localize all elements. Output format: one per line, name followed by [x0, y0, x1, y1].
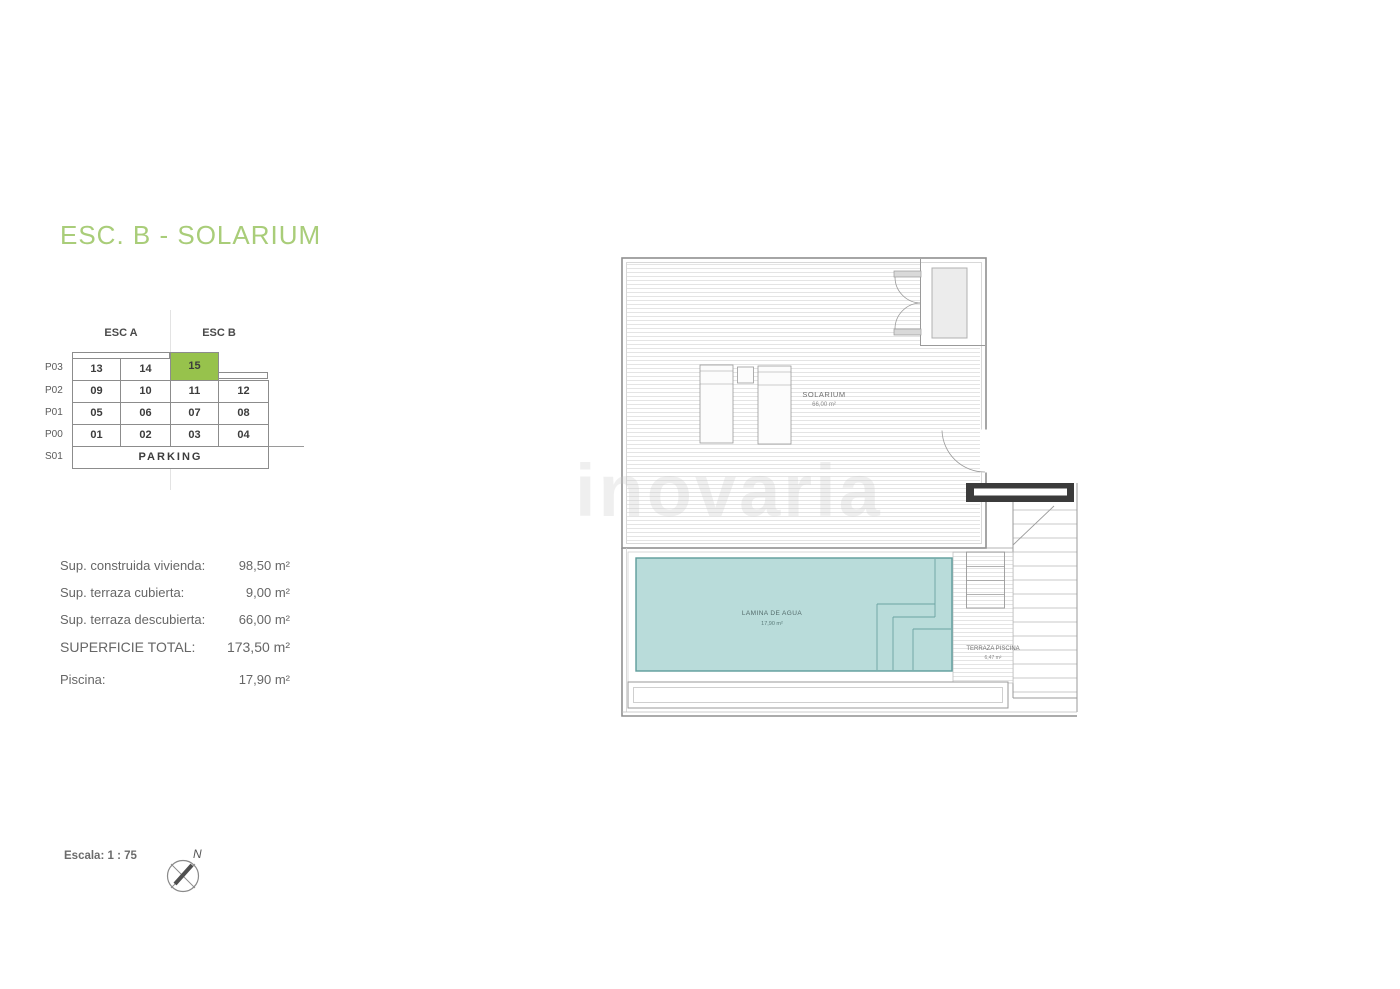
unit-cell-14: 14 [120, 358, 171, 381]
terrace-area-label: 6,47 m² [985, 655, 1002, 661]
unit-cell-03: 03 [170, 424, 219, 447]
compass-icon: N [163, 846, 209, 896]
area-row: Sup. terraza descubierta: 66,00 m² [60, 612, 288, 627]
unit-cell-05: 05 [72, 402, 121, 425]
door-jamb-bottom [894, 329, 921, 335]
area-value: 98,50 m² [239, 558, 290, 573]
sun-lounger [700, 365, 733, 443]
door-opening [981, 430, 988, 473]
page-title: ESC. B - SOLARIUM [60, 220, 321, 251]
skylight-box [932, 268, 967, 338]
exterior-stairs [1013, 510, 1077, 692]
unit-cell-08: 08 [218, 402, 269, 425]
stair-cut-line [1013, 506, 1054, 545]
unit-cell-09: 09 [72, 380, 121, 403]
row-label-p00: P00 [45, 429, 63, 440]
row-label-s01: S01 [45, 451, 63, 462]
area-label: Piscina: [60, 672, 106, 687]
area-label: Sup. construida vivienda: [60, 558, 205, 573]
roof-strip-right [218, 372, 268, 379]
sun-lounger [758, 366, 791, 444]
unit-cell-12: 12 [218, 380, 269, 403]
unit-cell-11: 11 [170, 380, 219, 403]
unit-cell-06: 06 [120, 402, 171, 425]
row-label-p01: P01 [45, 407, 63, 418]
area-value: 17,90 m² [239, 672, 290, 687]
area-label: SUPERFICIE TOTAL: [60, 639, 195, 655]
parking-cell: PARKING [72, 446, 269, 469]
area-row: Sup. terraza cubierta: 9,00 m² [60, 585, 288, 600]
ground-extension-line [267, 446, 304, 447]
unit-cell-10: 10 [120, 380, 171, 403]
area-row: Sup. construida vivienda: 98,50 m² [60, 558, 288, 573]
area-row-total: SUPERFICIE TOTAL: 173,50 m² [60, 639, 288, 655]
column-group-esc-a: ESC A [104, 327, 137, 339]
compass-north-label: N [193, 847, 202, 861]
pool-terrace-decking [953, 552, 1013, 683]
door-jamb-top [894, 271, 921, 277]
area-label: Sup. terraza cubierta: [60, 585, 184, 600]
area-value: 9,00 m² [246, 585, 290, 600]
area-value: 66,00 m² [239, 612, 290, 627]
unit-cell-07: 07 [170, 402, 219, 425]
area-value: 173,50 m² [227, 639, 290, 655]
pool-area-label: 17,90 m² [761, 621, 783, 627]
row-label-p03: P03 [45, 362, 63, 373]
row-label-p02: P02 [45, 385, 63, 396]
unit-cell-02: 02 [120, 424, 171, 447]
scale-label: Escala: 1 : 75 [64, 850, 137, 862]
unit-key-table: ESC A ESC B P03 P02 P01 P00 S01 13 14 15… [45, 310, 315, 495]
solarium-floorplan-drawing: SOLARIUM 66,00 m² [612, 245, 1098, 725]
unit-cell-01: 01 [72, 424, 121, 447]
unit-cell-13: 13 [72, 358, 121, 381]
floorplan-page: ESC. B - SOLARIUM ESC A ESC B P03 P02 P0… [0, 0, 1400, 989]
room-label: SOLARIUM [802, 390, 845, 399]
pool-label: LAMINA DE AGUA [742, 610, 802, 617]
column-group-esc-b: ESC B [202, 327, 236, 339]
area-label: Sup. terraza descubierta: [60, 612, 205, 627]
unit-cell-15-highlighted: 15 [170, 352, 219, 381]
area-row-pool: Piscina: 17,90 m² [60, 672, 288, 687]
terrace-label: TERRAZA PISCINA [966, 646, 1019, 652]
planter [628, 682, 1008, 708]
unit-cell-04: 04 [218, 424, 269, 447]
room-area-label: 66,00 m² [812, 402, 836, 408]
side-table [738, 367, 754, 383]
